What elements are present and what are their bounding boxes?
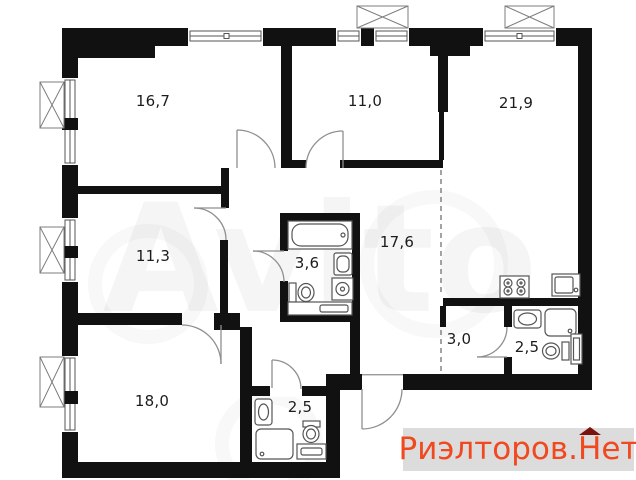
cabinet-icon xyxy=(288,302,352,315)
water-heater-icon xyxy=(571,334,582,364)
brand-roofed-letter: Н xyxy=(578,434,601,465)
sink-icon xyxy=(514,310,541,328)
room-area-label: 11,0 xyxy=(348,92,382,110)
room-area-label: 3,0 xyxy=(447,330,471,348)
brand-text-prefix: Риэлторов. xyxy=(399,431,578,467)
floorplan-drawing xyxy=(0,0,636,480)
door-arc xyxy=(194,208,226,240)
door-arc xyxy=(182,325,221,364)
stove-icon xyxy=(500,276,529,298)
ventilation-shaft-icon xyxy=(357,6,408,28)
door-arc xyxy=(477,327,507,357)
ventilation-shaft-icon xyxy=(40,82,64,128)
door-arc xyxy=(253,251,284,282)
room-area-label: 11,3 xyxy=(136,247,170,265)
brand-text-suffix: ет xyxy=(601,431,636,467)
room-area-label: 16,7 xyxy=(136,92,170,110)
bathtub-icon xyxy=(288,221,352,249)
kitchen-sink-icon xyxy=(552,274,580,296)
ventilation-shaft-icon xyxy=(40,227,64,273)
window-icon xyxy=(483,28,556,46)
door-arc xyxy=(272,360,301,389)
room-area-label: 2,5 xyxy=(515,338,539,356)
washing-machine-icon xyxy=(332,278,353,300)
room-area-label: 3,6 xyxy=(295,254,319,272)
room-area-label: 21,9 xyxy=(499,94,533,112)
window-icon xyxy=(374,28,409,46)
door-arc-entrance xyxy=(362,389,402,429)
room-area-label: 18,0 xyxy=(135,392,169,410)
room-area-label: 17,6 xyxy=(380,233,414,251)
shower-icon xyxy=(545,309,576,336)
shower-icon xyxy=(256,429,293,459)
toilet-icon xyxy=(543,342,570,360)
window-icon xyxy=(188,28,263,46)
door-arc xyxy=(237,130,275,168)
ventilation-shaft-icon xyxy=(40,357,64,407)
window-icon xyxy=(336,28,361,46)
floorplan-image: Avito xyxy=(0,0,636,480)
sink-icon xyxy=(255,399,272,425)
room-area-label: 2,5 xyxy=(288,398,312,416)
toilet-icon xyxy=(289,283,314,302)
brand-logo: Риэлторов.Нет xyxy=(403,428,634,471)
cabinet-icon xyxy=(297,444,326,459)
toilet-icon xyxy=(303,421,320,443)
ventilation-shaft-icons xyxy=(40,6,554,407)
door-arc xyxy=(306,131,343,168)
brand-text: Риэлторов.Нет xyxy=(399,434,636,465)
entrance-threshold-line xyxy=(362,374,403,375)
roof-icon xyxy=(579,427,601,435)
ventilation-shaft-icon xyxy=(505,6,554,28)
sink-icon xyxy=(334,253,352,275)
